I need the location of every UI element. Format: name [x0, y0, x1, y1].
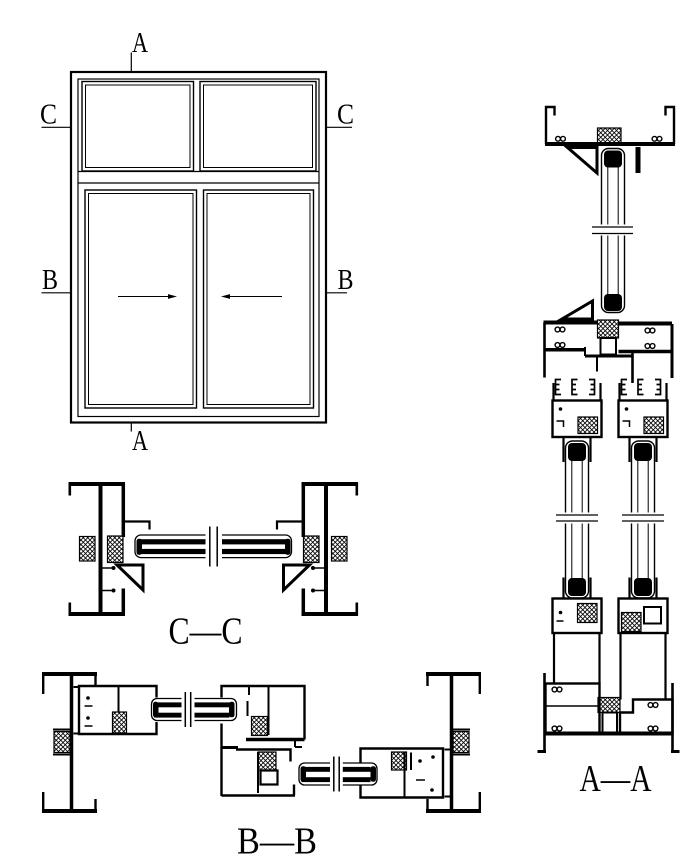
- aa-section-title: A—A: [580, 758, 652, 800]
- seal-hatch: [598, 320, 619, 338]
- slide-arrow-right-icon: [118, 294, 177, 299]
- bb-glazing-right: [299, 757, 377, 792]
- section-mark-b-left: B: [42, 264, 72, 296]
- bb-glazing-left: [152, 692, 237, 727]
- transom-bar: [78, 172, 319, 184]
- bb-jamb-right: [426, 674, 481, 811]
- cc-section-title: C—C: [169, 611, 243, 653]
- seal-hatch: [332, 537, 348, 562]
- screw-boss-icon: [555, 343, 565, 348]
- aa-sash-right: [619, 401, 668, 634]
- technical-drawing: A A C C B B: [0, 0, 700, 866]
- seal-hatch: [80, 537, 96, 562]
- screw-boss-icon: [645, 328, 655, 333]
- aa-sill-frame: [538, 633, 680, 752]
- glazing-wedge: [117, 565, 143, 590]
- aa-track-clips: [554, 380, 667, 401]
- screw-boss-icon: [652, 136, 662, 141]
- sliding-sash-left: [85, 190, 197, 408]
- screw-boss-icon: [552, 726, 562, 731]
- section-mark-c-right: C: [326, 99, 354, 131]
- bb-sash-left: [79, 686, 157, 734]
- seal-hatch: [252, 717, 268, 736]
- section-mark-b-right: B: [326, 264, 354, 296]
- seal-hatch: [54, 732, 70, 753]
- screw-boss-icon: [645, 344, 655, 349]
- seal-hatch: [622, 613, 642, 632]
- section-view-bb: B—B: [42, 674, 481, 863]
- bb-jamb-left: [42, 674, 97, 811]
- aa-transom: [544, 301, 673, 383]
- screw-boss-icon: [552, 687, 562, 692]
- fixed-pane-left: [82, 82, 194, 172]
- glazing-wedge: [568, 148, 598, 174]
- seal-hatch: [108, 536, 124, 563]
- cc-glazing-unit: [135, 527, 292, 567]
- section-mark-a-bottom: A: [131, 424, 148, 458]
- section-view-cc: C—C: [69, 483, 359, 653]
- section-mark-label: C: [337, 99, 354, 131]
- seal-hatch: [578, 604, 598, 623]
- section-mark-label: C: [40, 99, 57, 131]
- break-symbol: [334, 757, 339, 792]
- break-symbol: [185, 692, 190, 727]
- seal-hatch: [304, 536, 320, 563]
- fixed-pane-right: [200, 82, 316, 172]
- sliding-sash-right: [204, 190, 314, 408]
- window-outer-frame: [71, 72, 326, 423]
- screw-boss-icon: [555, 327, 565, 332]
- aa-sash-left: [553, 401, 602, 634]
- bb-interlock-stiles: [222, 686, 305, 796]
- bb-section-title: B—B: [237, 821, 317, 863]
- elevation-view: A A C C B B: [40, 27, 354, 457]
- section-mark-label: A: [132, 27, 148, 59]
- section-mark-a-top: A: [131, 27, 148, 72]
- section-mark-label: B: [338, 264, 354, 296]
- seal-hatch: [598, 698, 620, 713]
- section-mark-c-left: C: [40, 99, 71, 131]
- glazing-wedge: [562, 301, 593, 319]
- seal-hatch: [258, 752, 276, 770]
- break-symbol: [210, 527, 217, 567]
- seal-hatch: [453, 732, 469, 753]
- seal-hatch: [113, 712, 127, 733]
- screw-boss-icon: [556, 136, 566, 141]
- seal-hatch: [598, 128, 622, 145]
- glazing-stop: [636, 147, 641, 173]
- screw-boss-icon: [648, 703, 658, 708]
- section-mark-label: A: [132, 425, 148, 457]
- glazing-wedge: [284, 565, 310, 590]
- slide-arrow-left-icon: [221, 294, 282, 299]
- screw-boss-icon: [648, 726, 658, 731]
- section-mark-label: B: [42, 264, 58, 296]
- section-view-aa: A—A: [538, 107, 680, 800]
